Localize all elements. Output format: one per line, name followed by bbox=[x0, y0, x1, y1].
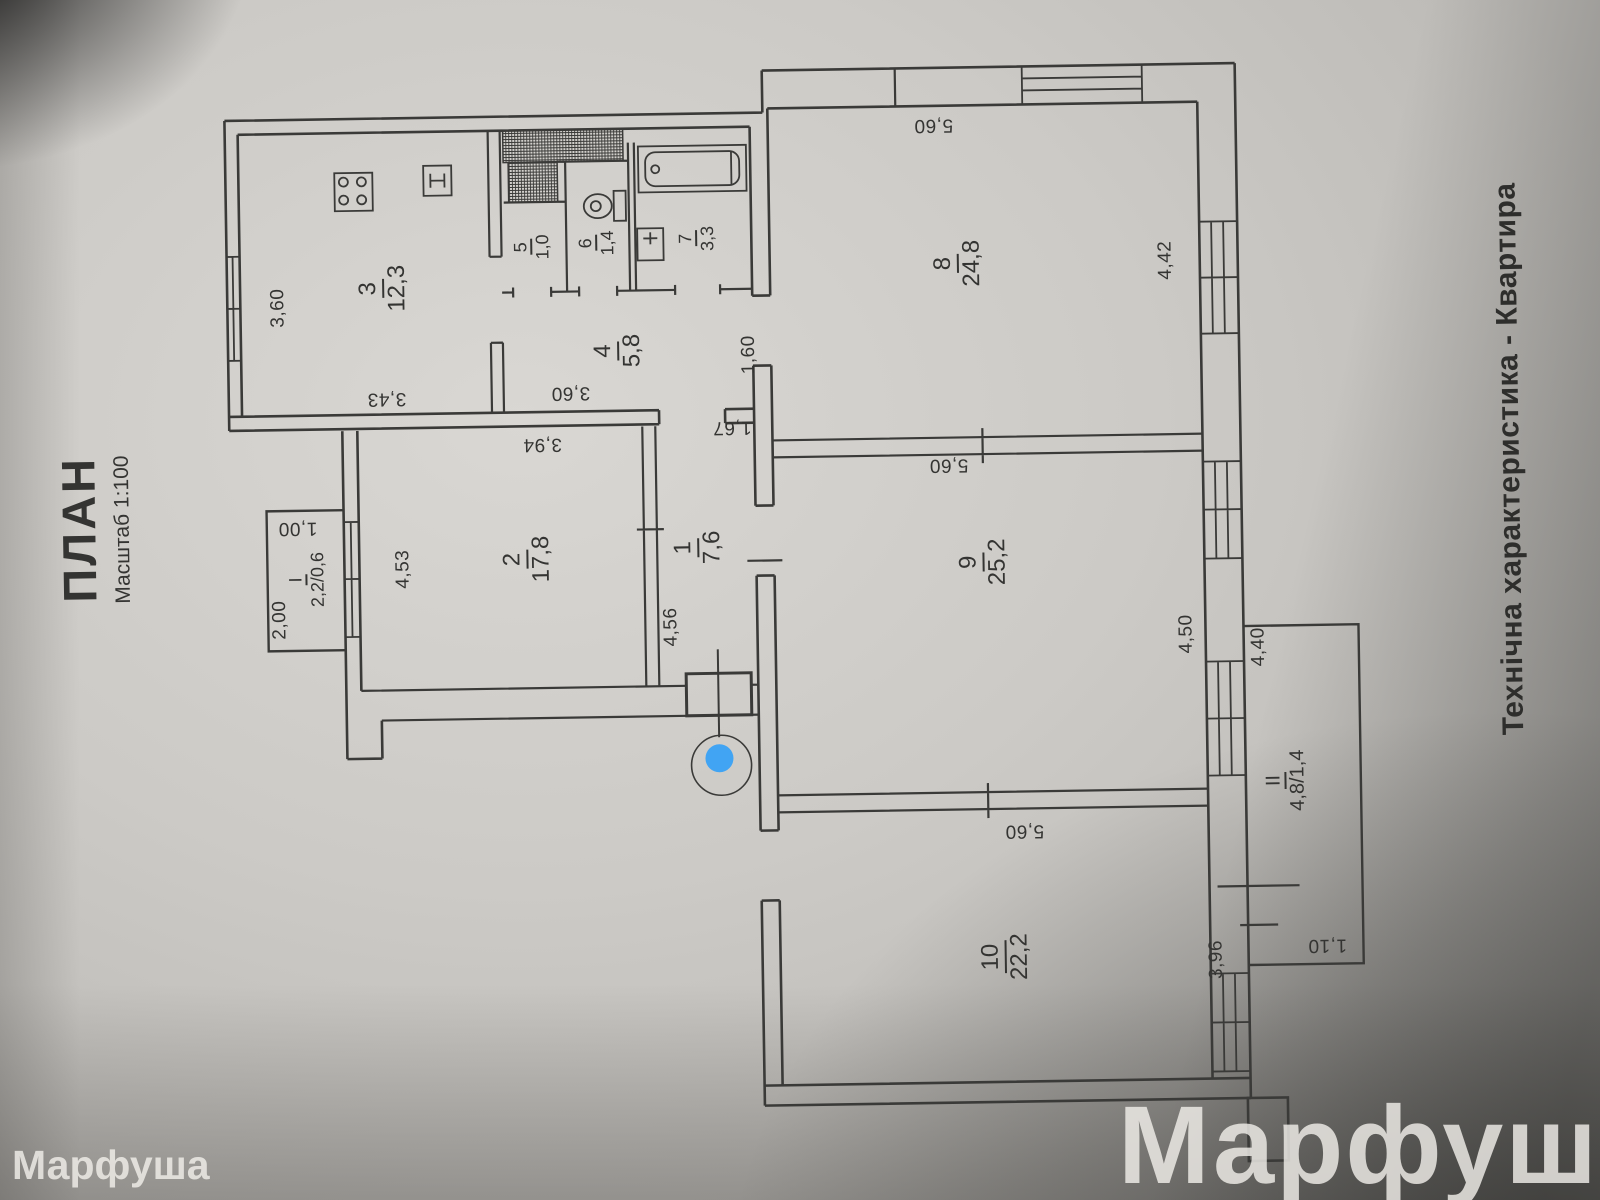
vent-shaft-hatch bbox=[503, 129, 624, 203]
watermark-small: Марфуша bbox=[12, 1142, 210, 1189]
room-7-label: 73,3 bbox=[675, 226, 718, 252]
watermark-large: Марфуша bbox=[1118, 1082, 1600, 1200]
dim-kitchen-left: 3,60 bbox=[267, 288, 290, 327]
toilet-icon bbox=[584, 191, 626, 222]
kitchen-sink-icon bbox=[423, 165, 451, 195]
page-title: ПЛАН bbox=[50, 456, 107, 604]
photographed-floor-plan-page: 312,3 51,0 61,4 73,3 45,8 217,8 17,6 824… bbox=[0, 0, 1600, 1200]
blue-marker-dot bbox=[705, 744, 733, 772]
outer-walls bbox=[224, 63, 1289, 1177]
bathtub-icon bbox=[638, 145, 747, 193]
balcony-1-label: I2,2/0,6 bbox=[285, 552, 328, 608]
room-4-label: 45,8 bbox=[590, 334, 646, 368]
room-1-label: 17,6 bbox=[670, 530, 726, 564]
interior-walls bbox=[352, 62, 1300, 939]
scale-label: Масштаб 1:100 bbox=[110, 455, 136, 604]
dim-room8-top: 5,60 bbox=[914, 114, 953, 137]
plan-layer: 312,3 51,0 61,4 73,3 45,8 217,8 17,6 824… bbox=[0, 0, 1600, 1200]
room-10-label: 1022,2 bbox=[977, 933, 1033, 981]
dim-room2-left: 4,53 bbox=[392, 550, 415, 589]
room-9-label: 925,2 bbox=[955, 538, 1011, 586]
room-2-label: 217,8 bbox=[499, 535, 555, 583]
room-6-label: 61,4 bbox=[575, 230, 618, 256]
dim-room10-top: 5,60 bbox=[1005, 819, 1044, 842]
dim-balcony2-top: 4,40 bbox=[1247, 627, 1270, 666]
dim-corridor-top: 1,67 bbox=[713, 416, 752, 439]
dim-room1-bottom: 4,56 bbox=[660, 607, 683, 646]
balconies bbox=[267, 494, 1364, 980]
dim-balcony2-bottom: 1,10 bbox=[1308, 933, 1347, 956]
stove-icon bbox=[334, 173, 373, 212]
dim-room9-right: 4,50 bbox=[1175, 614, 1198, 653]
balcony-2-label: II4,8/1,4 bbox=[1262, 749, 1310, 811]
dim-kitchen-bottom: 3,43 bbox=[367, 387, 406, 410]
room-8-label: 824,8 bbox=[929, 240, 985, 288]
dim-hall-bottom: 3,60 bbox=[551, 381, 590, 404]
dim-balcony1-width: 1,00 bbox=[278, 517, 317, 540]
dim-room9-top: 5,60 bbox=[929, 453, 968, 476]
dim-balcony1-length: 2,00 bbox=[269, 601, 292, 640]
dim-corridor-width: 1,60 bbox=[738, 335, 761, 374]
room-5-label: 51,0 bbox=[510, 234, 553, 260]
dim-room10-right: 3,96 bbox=[1205, 940, 1228, 979]
windows bbox=[224, 63, 1251, 1087]
washbasin-icon bbox=[637, 228, 663, 260]
room-3-label: 312,3 bbox=[355, 265, 411, 313]
dim-room2-top: 3,94 bbox=[523, 433, 562, 456]
dim-room8-right: 4,42 bbox=[1154, 241, 1177, 280]
entrance-door bbox=[686, 649, 752, 738]
floor-plan-drawing bbox=[0, 0, 1600, 1200]
